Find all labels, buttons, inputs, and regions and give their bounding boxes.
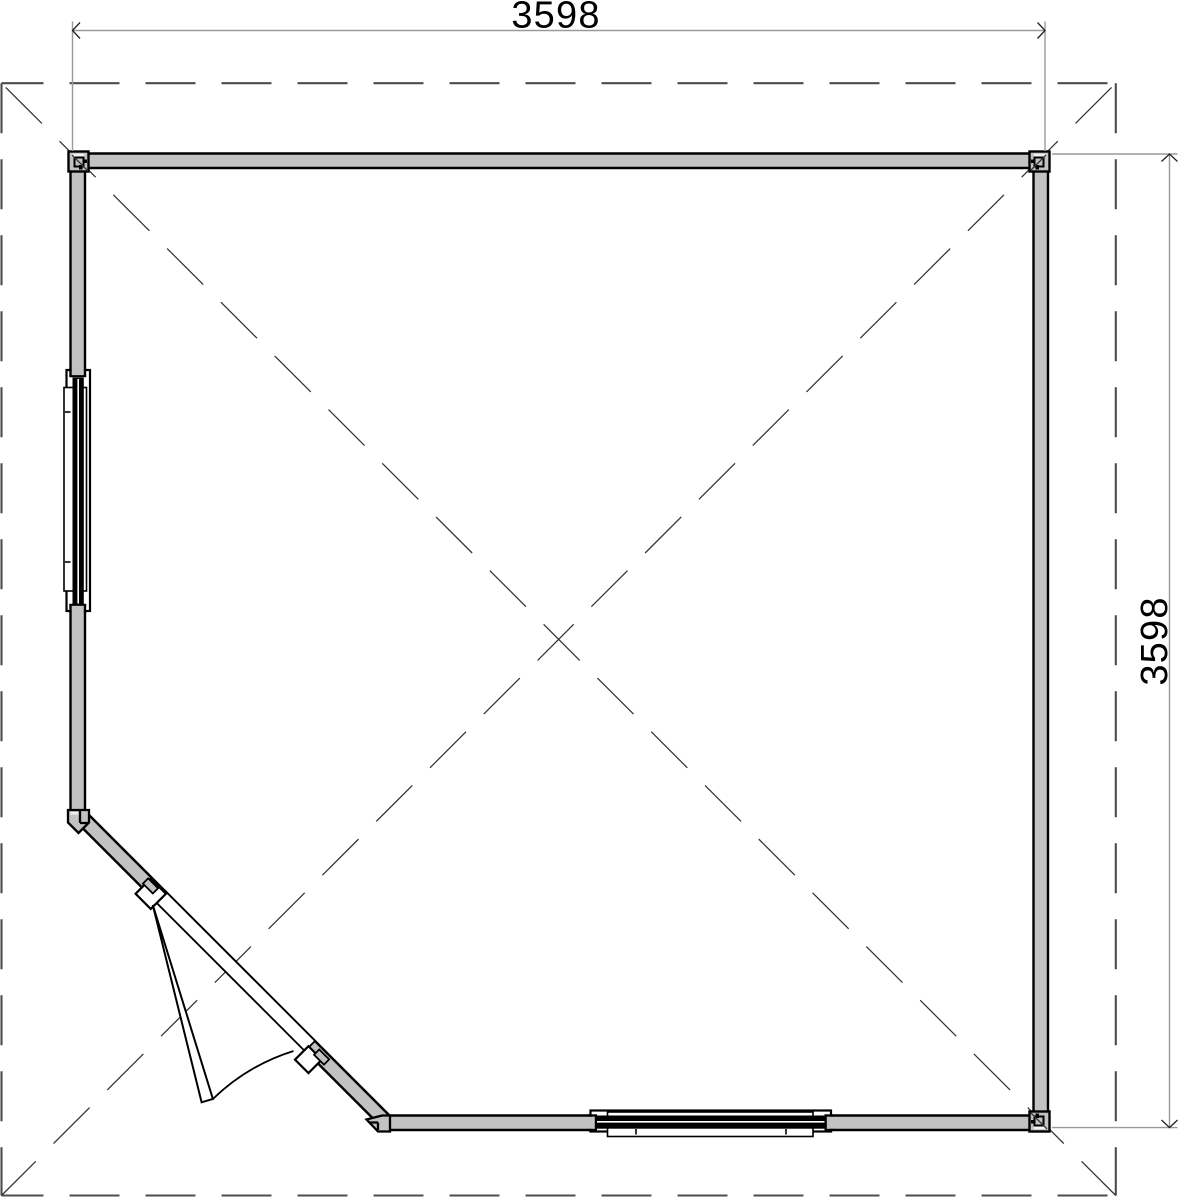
- svg-text:3598: 3598: [511, 0, 600, 37]
- svg-text:3598: 3598: [1134, 596, 1176, 685]
